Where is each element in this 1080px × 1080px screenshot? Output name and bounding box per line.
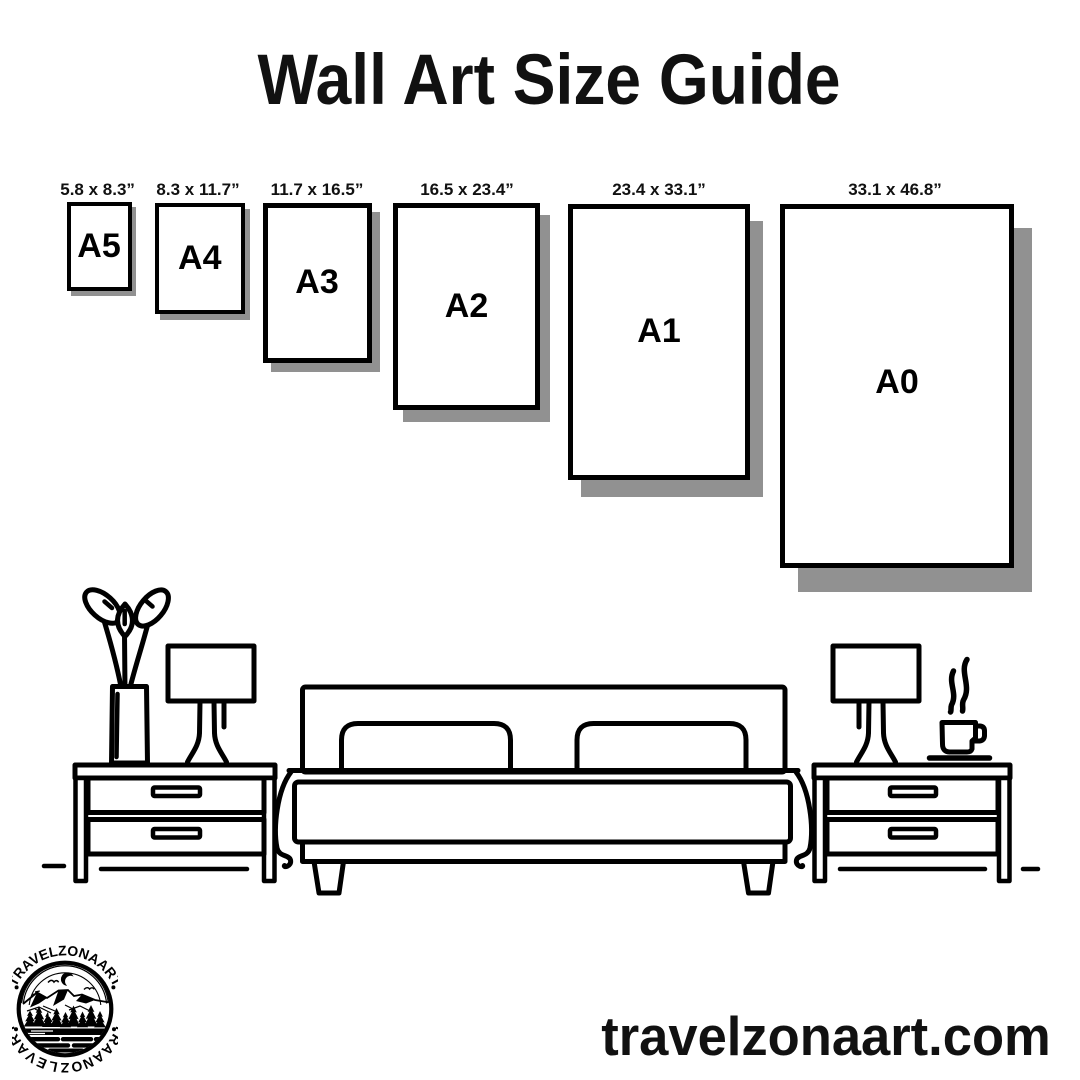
svg-text:Z: Z [60, 1060, 69, 1073]
